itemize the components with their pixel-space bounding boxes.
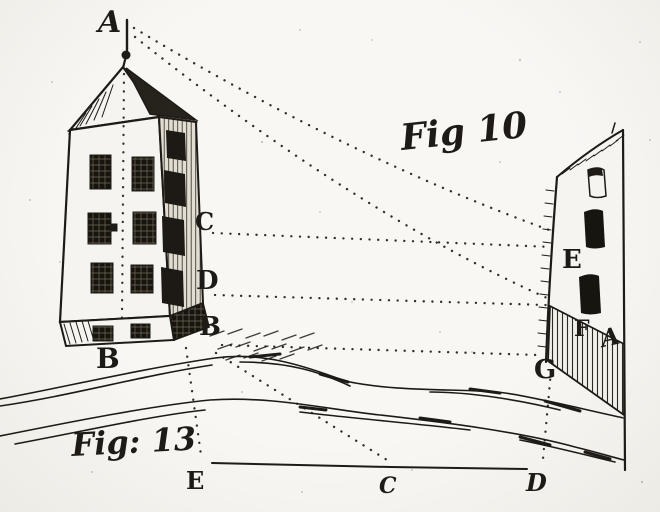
- engraving-canvas: A C D B B E F A G E C D Fig 10 Fig: 13: [0, 0, 660, 512]
- spire-finial: [122, 20, 131, 68]
- line-c-to-e: [213, 233, 552, 247]
- line-d-to-f: [215, 295, 546, 305]
- building-top-tick: [612, 123, 615, 133]
- label-base-c: C: [379, 473, 397, 499]
- scanned-figure-page: A C D B B E F A G E C D Fig 10 Fig: 13: [0, 0, 660, 512]
- label-tower-c: C: [195, 207, 214, 236]
- label-base-d: D: [525, 468, 547, 497]
- tower: [60, 20, 322, 361]
- baseline-e-c-d: [212, 463, 527, 469]
- fig13-caption: Fig: 13: [69, 420, 197, 465]
- label-tower-d: D: [196, 266, 219, 296]
- fig10-caption: Fig 10: [398, 104, 530, 159]
- right-building: [538, 123, 625, 470]
- line-b-to-g: [222, 345, 538, 355]
- label-wall-f: F: [574, 316, 590, 342]
- label-wall-g: G: [534, 355, 556, 385]
- label-base-e: E: [186, 466, 204, 495]
- building-right-edge: [623, 130, 625, 470]
- figure13-baseline: [186, 348, 551, 469]
- label-tower-b-corner: B: [199, 312, 221, 342]
- label-apex-a: A: [95, 5, 121, 40]
- label-tower-b-front: B: [96, 342, 120, 375]
- label-wall-e: E: [562, 245, 582, 275]
